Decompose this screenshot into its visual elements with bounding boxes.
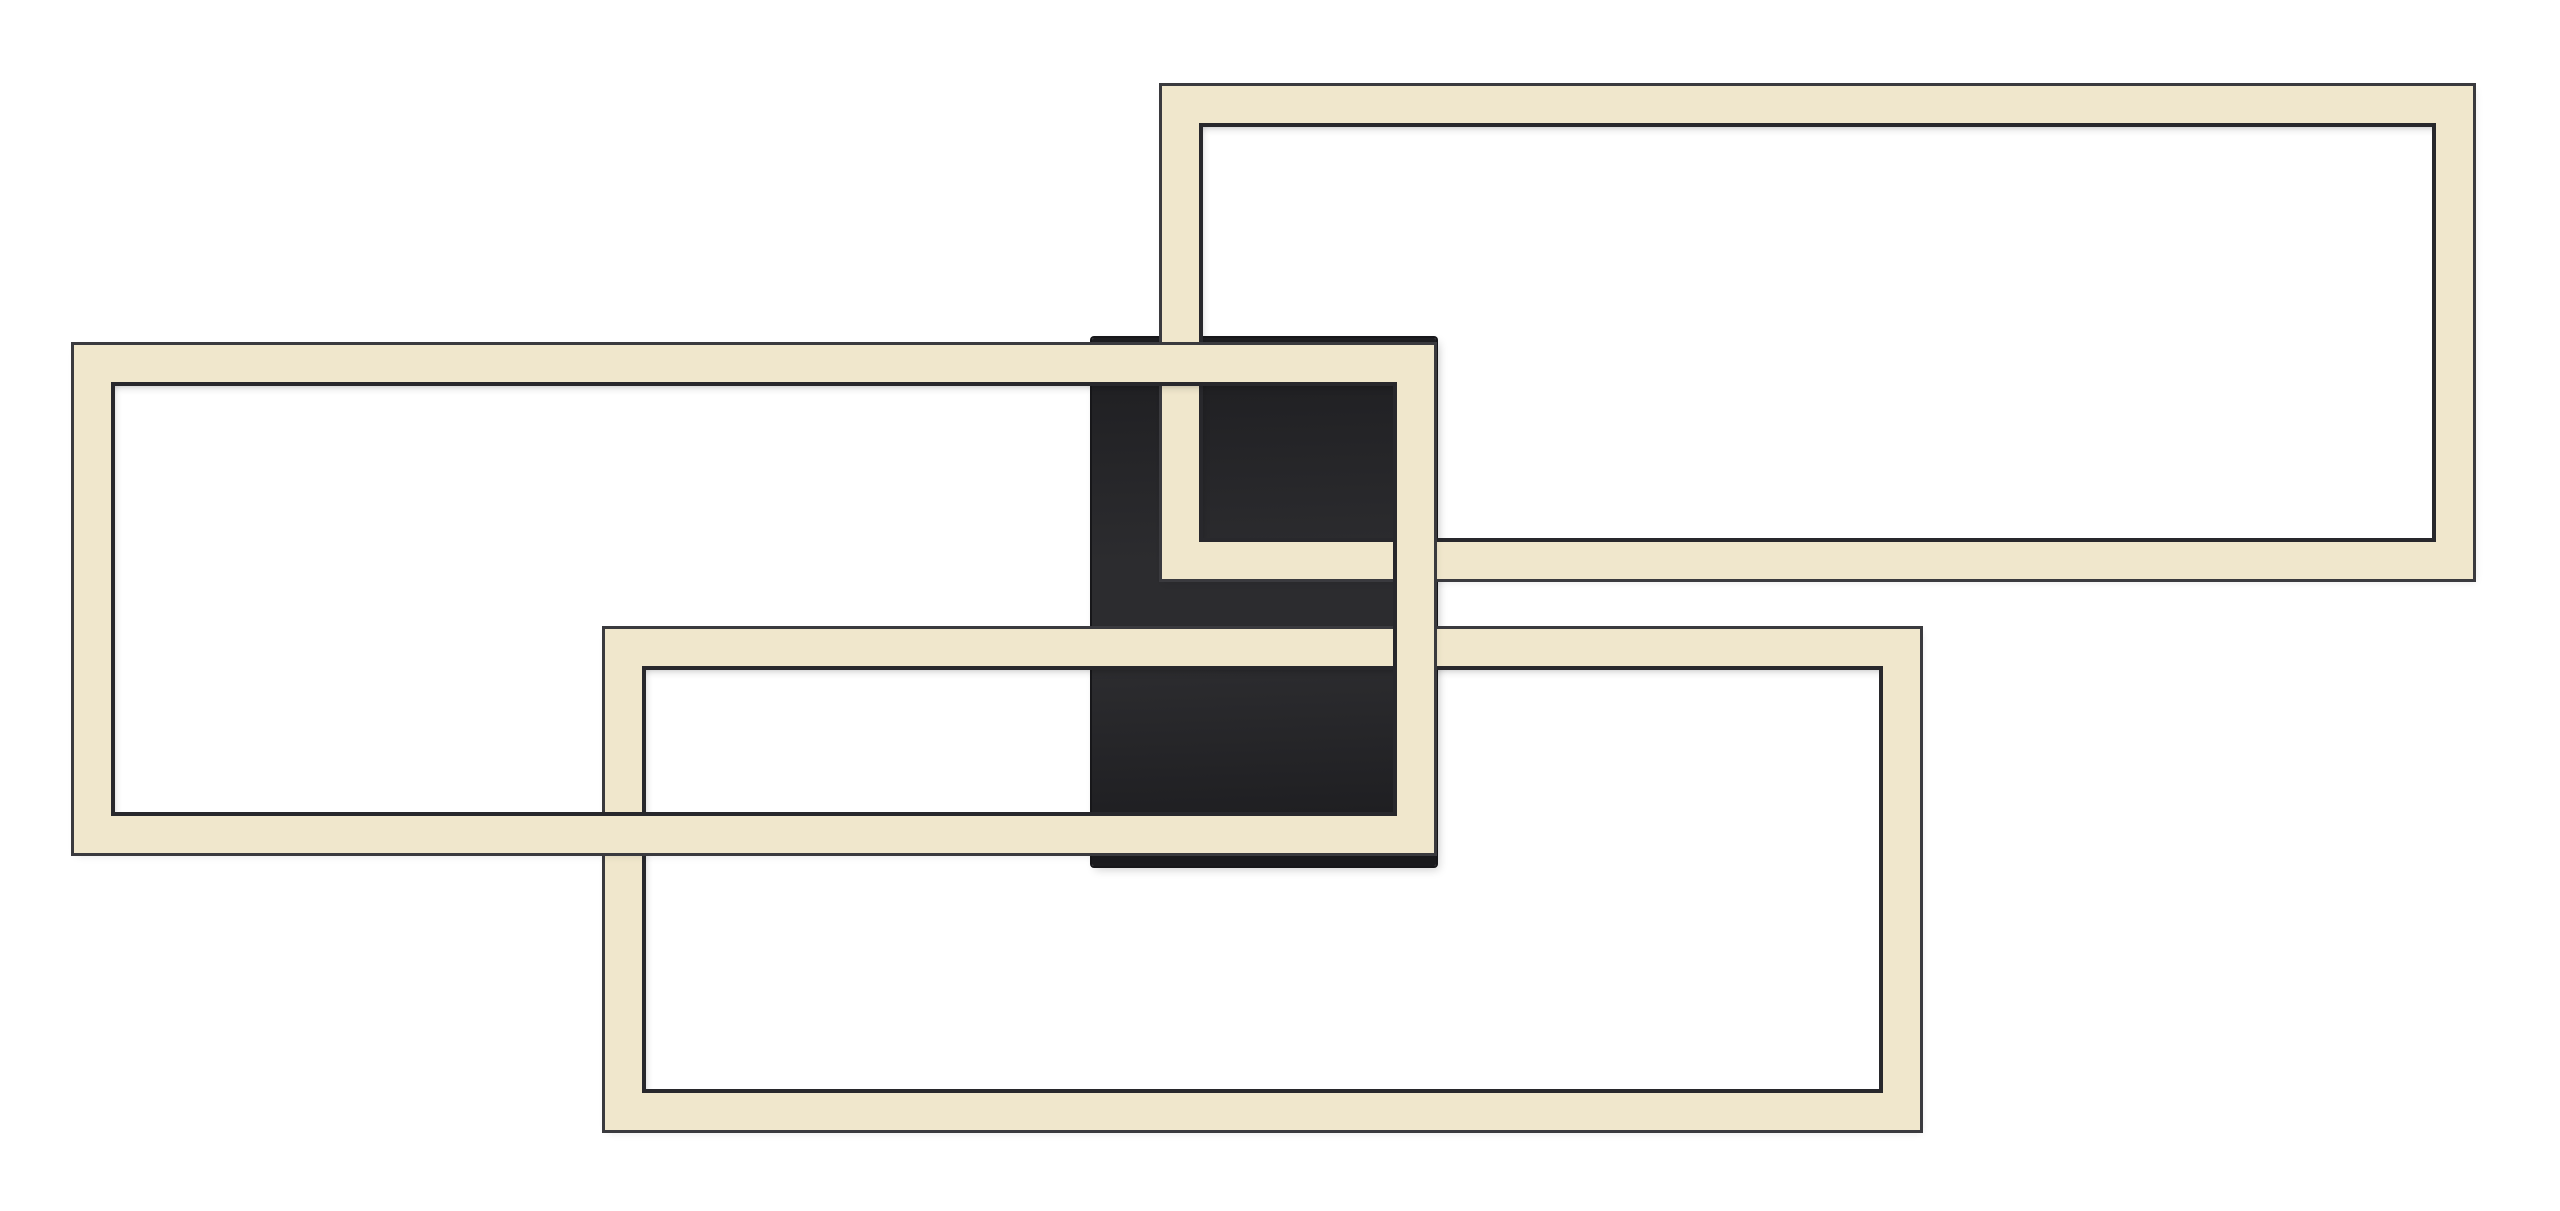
led-frame-left <box>74 345 1434 853</box>
ceiling-light-product-photo <box>0 0 2560 1211</box>
